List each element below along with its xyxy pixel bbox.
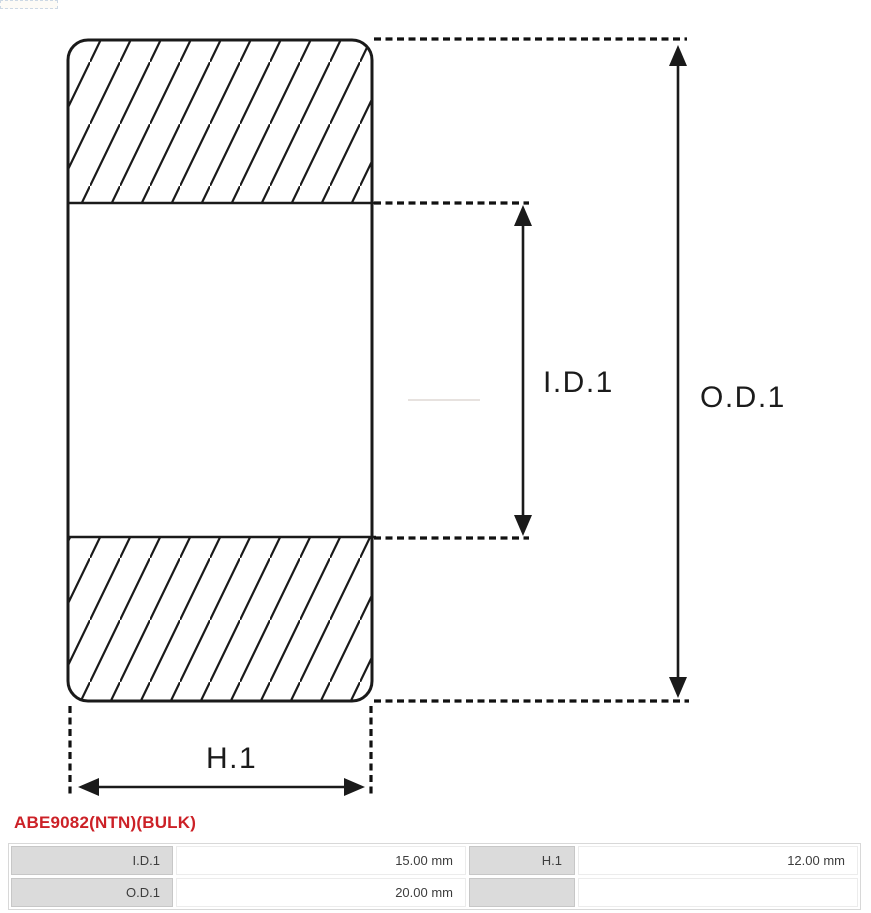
- spec-value-id1: 15.00 mm: [176, 846, 466, 875]
- spec-table: I.D.1 15.00 mm H.1 12.00 mm O.D.1 20.00 …: [8, 843, 861, 910]
- product-code: ABE9082(NTN)(BULK): [14, 813, 196, 833]
- inner-diameter-arrow: [514, 205, 532, 536]
- spec-label-id1: I.D.1: [11, 846, 173, 875]
- spec-label-empty: [469, 878, 575, 907]
- height-label: H.1: [206, 742, 257, 776]
- spec-value-h1: 12.00 mm: [578, 846, 858, 875]
- spec-value-od1: 20.00 mm: [176, 878, 466, 907]
- spec-value-empty: [578, 878, 858, 907]
- outer-diameter-arrow: [669, 45, 687, 698]
- height-arrow: [78, 778, 365, 796]
- spec-label-od1: O.D.1: [11, 878, 173, 907]
- bearing-spec-page: I.D.1 O.D.1 H.1 ABE9082(NTN)(BULK) I.D.1…: [0, 0, 871, 913]
- watermark-artifact: [408, 399, 480, 401]
- outer-diameter-label: O.D.1: [700, 381, 786, 415]
- hatched-race-sections: [68, 40, 372, 701]
- inner-diameter-label: I.D.1: [543, 366, 614, 400]
- spec-label-h1: H.1: [469, 846, 575, 875]
